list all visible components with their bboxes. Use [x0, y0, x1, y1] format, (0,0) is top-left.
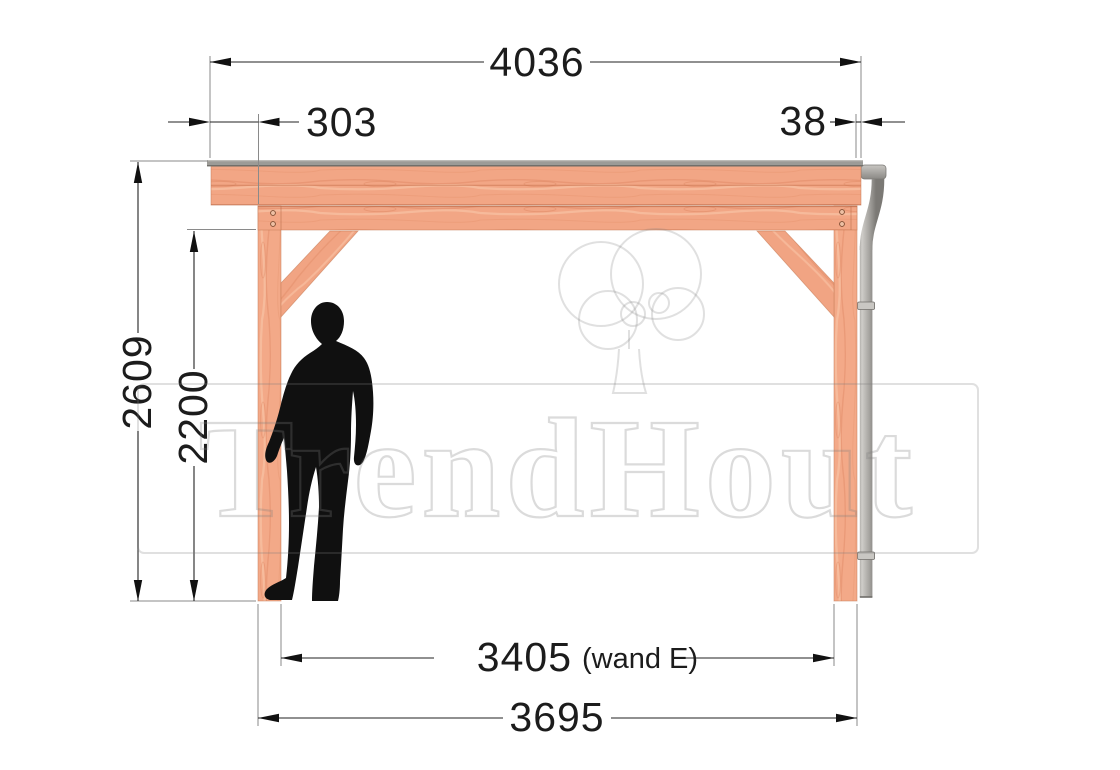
drawing-canvas: 4036 303 38 2609 [0, 0, 1120, 770]
gutter [861, 165, 886, 179]
dim-label-overhang-left: 303 [306, 99, 377, 145]
dim-roof-total: 4036 [210, 39, 861, 85]
dim-label-frame-width: 3695 [509, 694, 604, 740]
pipe-clamp-upper [858, 302, 875, 310]
dim-label-wall-span-note: (wand E) [582, 643, 698, 675]
veranda-side-elevation-drawing: 4036 303 38 2609 [0, 0, 1120, 770]
roof-covering [207, 160, 863, 167]
dim-overhang-left: 303 [168, 99, 377, 145]
dim-frame-width: 3695 [258, 694, 857, 740]
dim-label-overhang-right: 38 [779, 98, 827, 144]
roof-fascia [211, 167, 861, 206]
tree-logo-icon [559, 229, 704, 393]
screw-icon [271, 222, 276, 227]
dim-overhang-right: 38 [779, 98, 905, 144]
screw-icon [840, 222, 845, 227]
dim-label-wall-span: 3405 [477, 634, 572, 680]
dim-label-roof-total: 4036 [489, 39, 584, 85]
main-beam [258, 206, 857, 230]
screw-icon [840, 210, 845, 215]
screw-icon [271, 211, 276, 216]
watermark-brand-text: TrendHout [199, 389, 917, 547]
dim-wall-span: 3405 (wand E) [281, 634, 834, 680]
downpipe-bend [866, 179, 878, 250]
brace-right [757, 231, 834, 317]
